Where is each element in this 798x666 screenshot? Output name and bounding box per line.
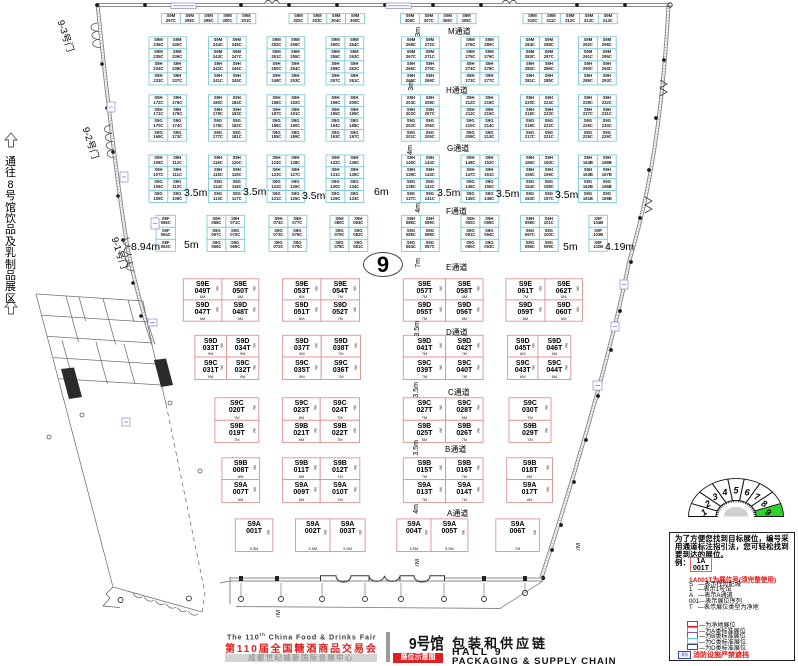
svg-text:7: 7 xyxy=(753,491,762,502)
svg-text:5: 5 xyxy=(733,486,739,496)
